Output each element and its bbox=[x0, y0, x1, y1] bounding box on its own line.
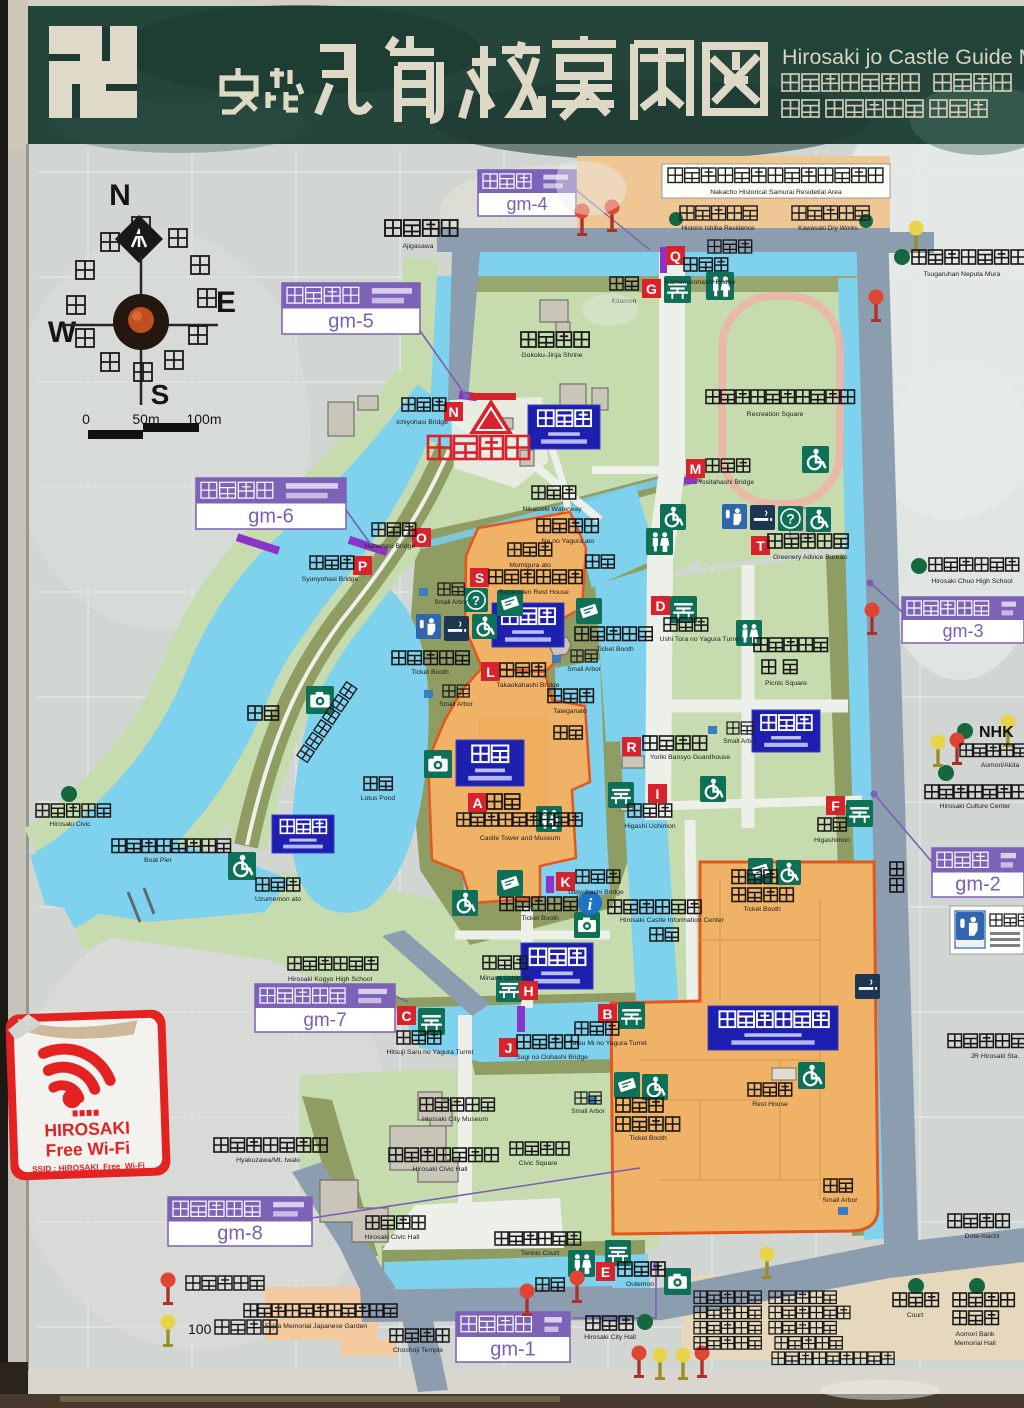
svg-text:Butokuden Rest House: Butokuden Rest House bbox=[499, 589, 569, 596]
svg-text:Picnic Square: Picnic Square bbox=[765, 680, 807, 687]
svg-text:Hirosaki Kogyo High School: Hirosaki Kogyo High School bbox=[288, 976, 373, 983]
svg-text:Hirosaki Civic Hall: Hirosaki Civic Hall bbox=[365, 1234, 420, 1241]
svg-text:D: D bbox=[655, 598, 665, 614]
svg-text:Hirosaki Civic Hall: Hirosaki Civic Hall bbox=[413, 1166, 468, 1173]
svg-text:Hirosaki Chuo High School: Hirosaki Chuo High School bbox=[931, 578, 1013, 585]
svg-text:Small Arbor: Small Arbor bbox=[434, 599, 468, 606]
svg-text:gm-2: gm-2 bbox=[955, 874, 1001, 896]
svg-text:Higashi Uchimon: Higashi Uchimon bbox=[624, 823, 676, 830]
svg-text:Tateganato: Tateganato bbox=[553, 708, 587, 715]
svg-text:Yoriki Bansyo Guardhouse: Yoriki Bansyo Guardhouse bbox=[650, 754, 730, 761]
svg-text:R: R bbox=[626, 739, 636, 755]
svg-text:0: 0 bbox=[82, 411, 90, 427]
svg-text:E: E bbox=[216, 286, 236, 319]
svg-text:gm-8: gm-8 bbox=[217, 1223, 263, 1245]
svg-text:Ajigasawa: Ajigasawa bbox=[403, 243, 434, 250]
svg-text:K: K bbox=[560, 874, 570, 890]
svg-text:Recreation Square: Recreation Square bbox=[747, 411, 804, 418]
svg-text:Sugi no Oohashi Bridge: Sugi no Oohashi Bridge bbox=[516, 1054, 588, 1061]
svg-text:JR Hirosaki Sta.: JR Hirosaki Sta. bbox=[971, 1053, 1020, 1060]
svg-text:I: I bbox=[656, 786, 660, 802]
svg-text:J: J bbox=[505, 1040, 513, 1056]
svg-text:gm-5: gm-5 bbox=[328, 310, 374, 332]
svg-text:O: O bbox=[416, 530, 427, 546]
svg-text:Q: Q bbox=[670, 248, 681, 264]
svg-text:Ticket Booth: Ticket Booth bbox=[411, 669, 449, 676]
svg-text:Small Arbor: Small Arbor bbox=[822, 1197, 858, 1204]
svg-text:Ticket Booth: Ticket Booth bbox=[629, 1135, 667, 1142]
svg-text:i: i bbox=[588, 895, 593, 914]
svg-text:Ne no Yagura ato: Ne no Yagura ato bbox=[542, 538, 595, 545]
svg-text:Aomori/Akita: Aomori/Akita bbox=[981, 762, 1020, 769]
svg-text:Kamenokohashi Bridge: Kamenokohashi Bridge bbox=[665, 279, 735, 286]
svg-text:Hirosaki Civic: Hirosaki Civic bbox=[49, 821, 91, 828]
svg-text:Boat Pier: Boat Pier bbox=[144, 857, 173, 864]
svg-text:W: W bbox=[48, 316, 77, 349]
svg-text:Hirosaki City Hall: Hirosaki City Hall bbox=[584, 1334, 636, 1341]
svg-text:Higashimon: Higashimon bbox=[814, 837, 850, 844]
svg-text:gm-4: gm-4 bbox=[506, 194, 547, 214]
svg-text:N: N bbox=[448, 404, 458, 420]
svg-text:Ticket Booth: Ticket Booth bbox=[596, 646, 634, 653]
svg-text:Takaokahashi Bridge: Takaokahashi Bridge bbox=[496, 682, 559, 689]
svg-text:?: ? bbox=[786, 511, 795, 527]
svg-text:Uzumemon ato: Uzumemon ato bbox=[255, 896, 301, 903]
svg-text:L: L bbox=[486, 664, 495, 680]
svg-text:Hirosaki Castle Information Ce: Hirosaki Castle Information Center bbox=[620, 917, 725, 924]
svg-text:Hanehasi Bridge: Hanehasi Bridge bbox=[365, 543, 415, 550]
svg-text:100: 100 bbox=[188, 1321, 212, 1337]
svg-text:Yositahashi Bridge: Yositahashi Bridge bbox=[698, 479, 754, 486]
svg-text:Hirosaki Culture Center: Hirosaki Culture Center bbox=[940, 803, 1011, 810]
svg-text:B: B bbox=[602, 1006, 612, 1022]
svg-text:Ticket Booth: Ticket Booth bbox=[521, 915, 559, 922]
svg-text:Kawasaki Dry Works: Kawasaki Dry Works bbox=[798, 225, 859, 232]
svg-text:Momigura ato: Momigura ato bbox=[509, 562, 551, 569]
svg-text:?: ? bbox=[472, 593, 480, 608]
svg-text:H: H bbox=[523, 983, 533, 999]
svg-text:Hyakuzawa/Mt. Iwaki: Hyakuzawa/Mt. Iwaki bbox=[236, 1157, 300, 1164]
svg-text:Ichiyohasi Bridge: Ichiyohasi Bridge bbox=[396, 419, 448, 426]
svg-text:G: G bbox=[646, 281, 657, 297]
svg-text:Choshoji Temple: Choshoji Temple bbox=[393, 1347, 443, 1354]
svg-text:Hirosaki City Museum: Hirosaki City Museum bbox=[422, 1116, 488, 1123]
svg-text:gm-7: gm-7 bbox=[303, 1010, 346, 1031]
svg-text:Aomori Bank: Aomori Bank bbox=[956, 1331, 996, 1338]
svg-text:A: A bbox=[472, 795, 482, 811]
svg-text:Fujita Memorial Japanese Garde: Fujita Memorial Japanese Garden bbox=[265, 1323, 368, 1330]
svg-text:Court: Court bbox=[907, 1312, 924, 1319]
svg-text:Free Wi-Fi: Free Wi-Fi bbox=[45, 1138, 130, 1161]
svg-text:Nakacho Historical Samurai Res: Nakacho Historical Samurai Residetial Ar… bbox=[710, 189, 842, 196]
svg-text:C: C bbox=[401, 1008, 411, 1024]
svg-text:Tennis Court: Tennis Court bbox=[521, 1250, 559, 1257]
svg-text:Dote-machi: Dote-machi bbox=[965, 1233, 1000, 1240]
svg-text:Small Arbor: Small Arbor bbox=[571, 1108, 605, 1115]
svg-text:Historic Ishiba Residence: Historic Ishiba Residence bbox=[681, 225, 755, 232]
svg-text:P: P bbox=[358, 558, 367, 574]
svg-text:S: S bbox=[151, 379, 170, 410]
svg-text:M: M bbox=[690, 461, 702, 477]
svg-text:Outemon: Outemon bbox=[626, 1281, 654, 1288]
svg-text:Lotus Pond: Lotus Pond bbox=[361, 795, 396, 802]
svg-text:Nikaizeki Waterway: Nikaizeki Waterway bbox=[522, 506, 582, 513]
svg-text:Small Arbor: Small Arbor bbox=[723, 738, 757, 745]
svg-text:F: F bbox=[831, 798, 840, 814]
svg-text:Civic Square: Civic Square bbox=[519, 1160, 558, 1167]
svg-text:Gokoku-Jinja Shrine: Gokoku-Jinja Shrine bbox=[521, 352, 582, 359]
svg-text:Gejyohashi Bridge: Gejyohashi Bridge bbox=[568, 889, 624, 896]
svg-text:gm-6: gm-6 bbox=[248, 505, 294, 527]
svg-text:Greenery Advice Bureau: Greenery Advice Bureau bbox=[773, 554, 847, 561]
svg-text:Hitsuji Saru no Yagura Turret: Hitsuji Saru no Yagura Turret bbox=[386, 1049, 473, 1056]
svg-text:gm-1: gm-1 bbox=[490, 1339, 536, 1361]
svg-text:Ticket Booth: Ticket Booth bbox=[743, 906, 781, 913]
svg-text:Syunyohasi Bridge: Syunyohasi Bridge bbox=[302, 576, 359, 583]
svg-text:Rest House: Rest House bbox=[752, 1101, 788, 1108]
svg-text:N: N bbox=[109, 179, 131, 212]
svg-text:Castle Tower and Museum: Castle Tower and Museum bbox=[480, 835, 561, 842]
svg-text:Tsugaruhan Neputa Mura: Tsugaruhan Neputa Mura bbox=[924, 271, 1001, 278]
svg-text:Hirosaki jo Castle Guide Ma: Hirosaki jo Castle Guide Ma bbox=[782, 45, 1024, 69]
svg-text:S: S bbox=[475, 570, 484, 586]
svg-text:gm-3: gm-3 bbox=[942, 621, 983, 641]
svg-text:NHK: NHK bbox=[979, 724, 1014, 741]
svg-text:Memorial Hall: Memorial Hall bbox=[954, 1340, 996, 1347]
svg-text:T: T bbox=[756, 538, 765, 554]
svg-text:Small Arbor: Small Arbor bbox=[567, 666, 601, 673]
svg-text:Tatsu Mi no Yagura Turret: Tatsu Mi no Yagura Turret bbox=[569, 1040, 647, 1047]
svg-text:E: E bbox=[601, 1264, 610, 1280]
svg-text:Small Arbor: Small Arbor bbox=[439, 701, 473, 708]
svg-text:Minami Uchimon: Minami Uchimon bbox=[480, 975, 531, 982]
svg-text:Ushi Tora no Yagura Turret: Ushi Tora no Yagura Turret bbox=[660, 636, 741, 643]
